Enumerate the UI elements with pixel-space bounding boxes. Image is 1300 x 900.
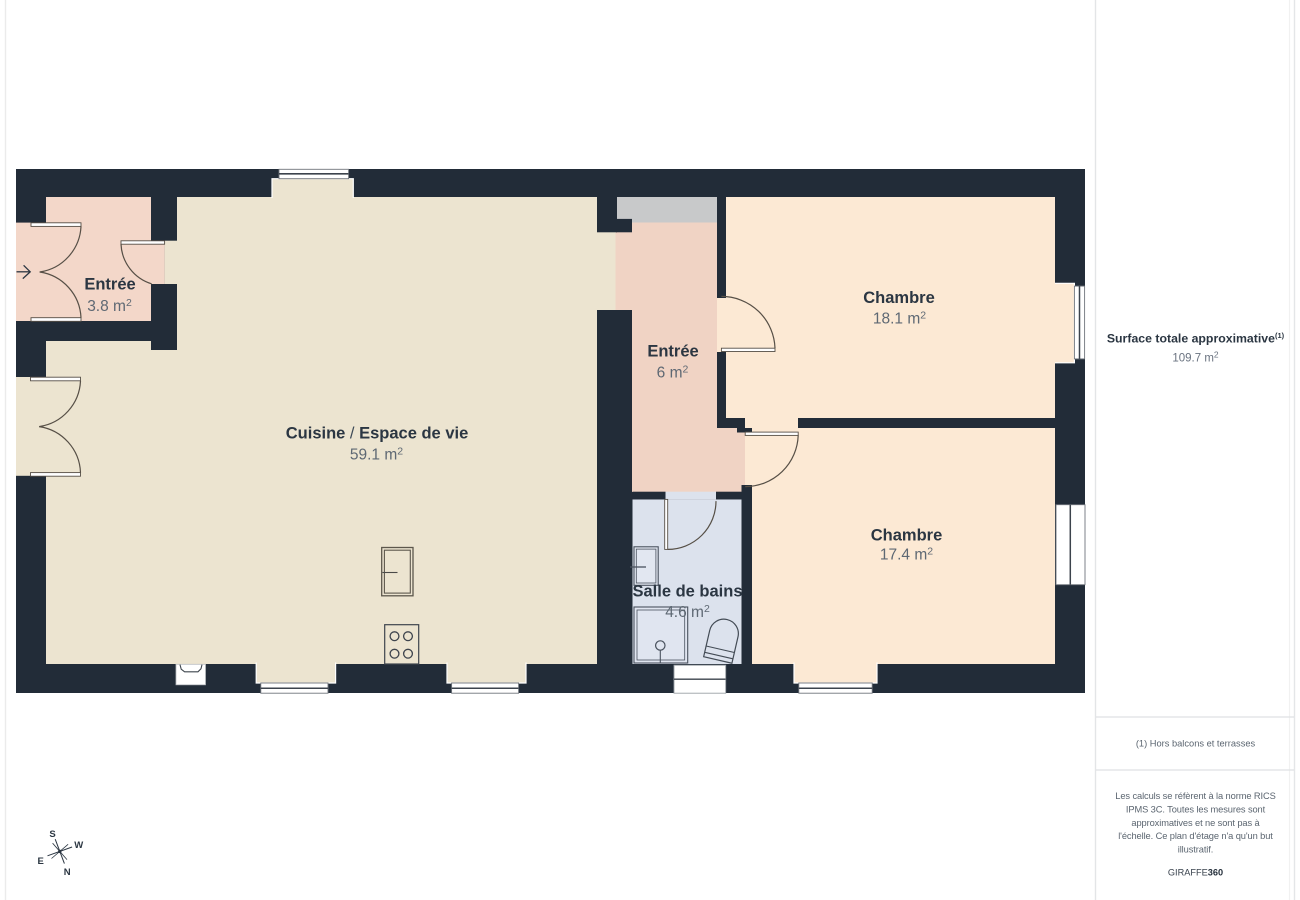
svg-text:3.8 m2: 3.8 m2 [87,297,132,315]
svg-text:109.7 m2: 109.7 m2 [1172,350,1219,365]
svg-text:Surface totale approximative(1: Surface totale approximative(1) [1107,331,1285,346]
svg-text:Salle de bains: Salle de bains [632,583,742,601]
svg-text:(1) Hors balcons et terrasses: (1) Hors balcons et terrasses [1136,739,1256,749]
svg-text:l'échelle. Ce plan d'étage n'a: l'échelle. Ce plan d'étage n'a qu'un but [1118,831,1273,841]
svg-text:Chambre: Chambre [863,289,935,307]
svg-text:4.6 m2: 4.6 m2 [665,603,710,621]
svg-text:59.1 m2: 59.1 m2 [350,446,403,464]
svg-text:17.4 m2: 17.4 m2 [880,546,933,564]
svg-text:illustratif.: illustratif. [1178,845,1213,855]
svg-text:IPMS 3C. Toutes les mesures so: IPMS 3C. Toutes les mesures sont [1126,805,1266,815]
svg-text:approximatives et ne sont pas: approximatives et ne sont pas à [1131,818,1260,828]
svg-text:Entrée: Entrée [84,276,135,294]
svg-text:E: E [38,856,44,867]
svg-text:Chambre: Chambre [871,527,943,545]
svg-text:GIRAFFE360: GIRAFFE360 [1168,868,1223,878]
svg-text:Cuisine / Espace de vie: Cuisine / Espace de vie [286,425,469,443]
svg-text:Les calculs se réfèrent à la n: Les calculs se réfèrent à la norme RICS [1115,791,1275,801]
svg-text:W: W [74,840,83,851]
svg-text:18.1 m2: 18.1 m2 [873,310,926,328]
svg-text:S: S [49,829,55,840]
svg-text:Entrée: Entrée [647,343,698,361]
svg-text:N: N [64,867,71,878]
